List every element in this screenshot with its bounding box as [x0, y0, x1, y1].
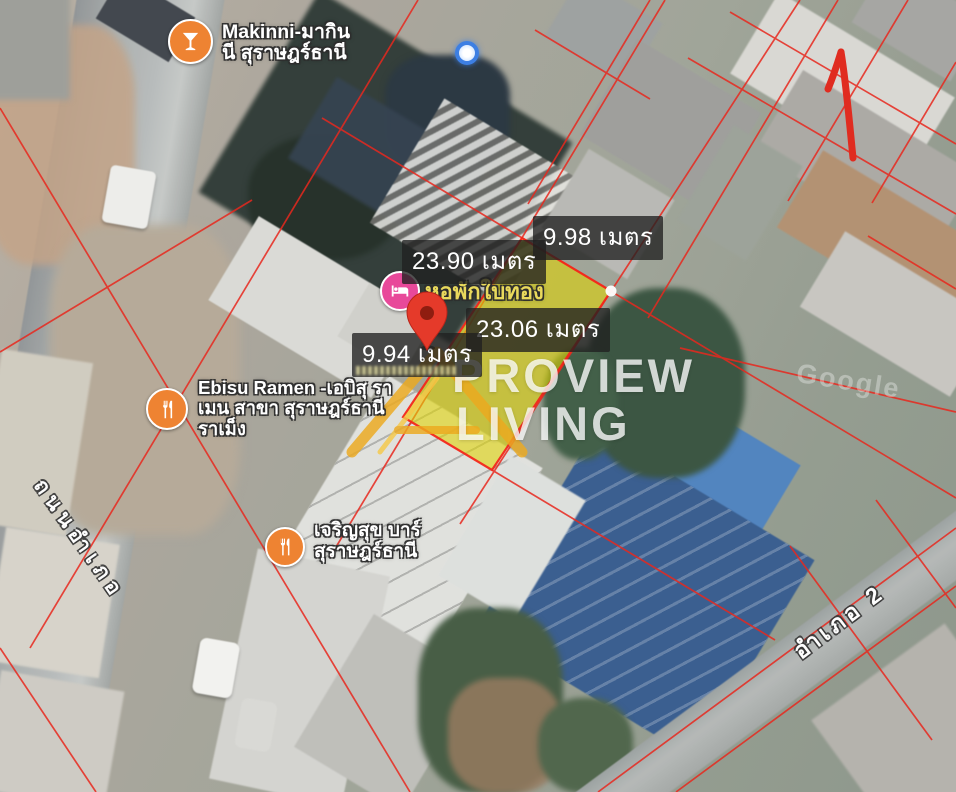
poi-label: Makinni-มากิน — [222, 22, 350, 43]
poi-label: เจริญสุข บาร์ — [314, 521, 421, 542]
fine-print-strip — [356, 366, 458, 375]
measurement-west: 23.90 เมตร — [402, 240, 546, 284]
cocktail-icon — [179, 30, 202, 53]
poi-label: นี สุราษฎร์ธานี — [222, 43, 350, 64]
measurement-east: 23.06 เมตร — [466, 308, 610, 352]
watermark-brand-line2: LIVING — [456, 396, 631, 451]
fork-knife-icon — [157, 399, 178, 420]
plot-corner-dot — [606, 286, 617, 297]
poi-label: สุราษฎร์ธานี — [314, 542, 421, 563]
poi-label: ราเม็ง — [198, 419, 392, 439]
restaurant-marker[interactable] — [146, 388, 188, 430]
measurement-north: 9.98 เมตร — [533, 216, 663, 260]
satellite-map[interactable]: Makinni-มากิน นี สุราษฎร์ธานี หอพักใบทอง — [0, 0, 956, 792]
poi-label: เมน สาขา สุราษฎร์ธานี — [198, 398, 392, 418]
poi-label: Ebisu Ramen -เอบิสุ รา — [198, 378, 392, 398]
watermark-brand-line1: PROVIEW — [452, 348, 695, 403]
fork-knife-icon — [275, 537, 295, 557]
bar-marker[interactable] — [168, 19, 213, 64]
blue-position-dot[interactable] — [455, 41, 479, 65]
restaurant-marker[interactable] — [265, 527, 305, 567]
